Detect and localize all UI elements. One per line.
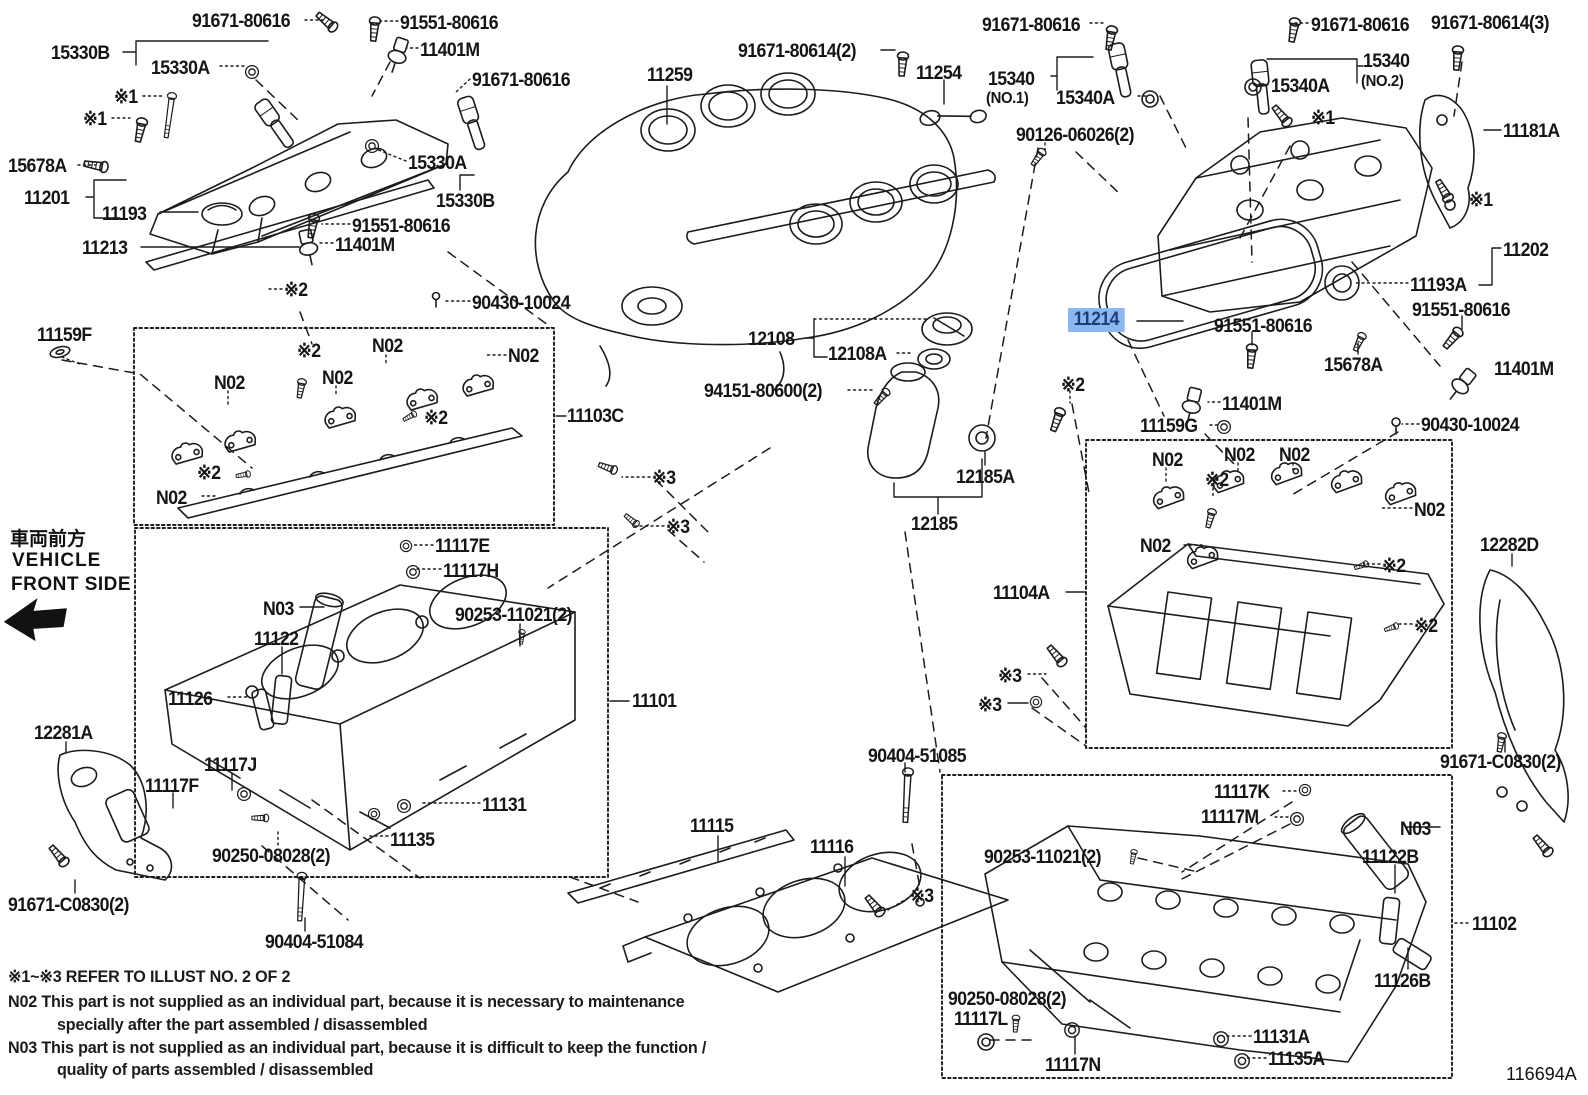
part-label-11181A[interactable]: 11181A <box>1503 122 1560 141</box>
part-label--NO-1-[interactable]: (NO.1) <box>986 91 1028 107</box>
part-label-N03[interactable]: N03 <box>263 600 294 619</box>
part-label-11117E[interactable]: 11117E <box>435 537 490 556</box>
part-label-15340A[interactable]: 15340A <box>1271 77 1330 96</box>
part-label-91671-80616[interactable]: 91671-80616 <box>982 16 1080 35</box>
part-label-N02[interactable]: N02 <box>1224 446 1255 465</box>
part-label-91671-80614-3-[interactable]: 91671-80614(3) <box>1431 14 1549 33</box>
part-label-90430-10024[interactable]: 90430-10024 <box>1421 416 1519 435</box>
coils-and-sensors <box>49 36 1479 1068</box>
gasket-strip-11115-drawing <box>568 830 794 903</box>
note-ref-illust: ※1~※3 REFER TO ILLUST NO. 2 OF 2 <box>8 967 290 987</box>
part-label-91551-80616[interactable]: 91551-80616 <box>1214 317 1312 336</box>
part-label-11213[interactable]: 11213 <box>82 239 127 258</box>
part-label-94151-80600-2-[interactable]: 94151-80600(2) <box>704 382 822 401</box>
part-label-15330B[interactable]: 15330B <box>51 44 110 63</box>
part-label-12282D[interactable]: 12282D <box>1480 536 1539 555</box>
part-label-N02[interactable]: N02 <box>372 337 403 356</box>
box-11103C <box>134 328 554 525</box>
part-label-11103C[interactable]: 11103C <box>567 407 624 426</box>
grommet-12185A-drawing <box>969 425 995 451</box>
part-label-N02[interactable]: N02 <box>1140 537 1171 556</box>
part-label-90250-08028-2-[interactable]: 90250-08028(2) <box>948 990 1066 1009</box>
leader-lines <box>62 20 1469 1058</box>
part-label--1[interactable]: ※1 <box>1469 191 1493 210</box>
part-label-11135A[interactable]: 11135A <box>1268 1050 1325 1069</box>
fasteners <box>47 10 1555 1032</box>
connector-lines <box>66 41 1512 1054</box>
part-label-N03[interactable]: N03 <box>1400 820 1431 839</box>
box-11102 <box>942 775 1452 1078</box>
seal-11159F-drawing <box>49 345 71 360</box>
part-label-11401M[interactable]: 11401M <box>1494 360 1554 379</box>
part-label--3[interactable]: ※3 <box>652 469 676 488</box>
part-label-90126-06026-2-[interactable]: 90126-06026(2) <box>1016 126 1134 145</box>
part-label-11401M[interactable]: 11401M <box>1222 395 1282 414</box>
part-label-11401M[interactable]: 11401M <box>335 236 395 255</box>
part-label-90430-10024[interactable]: 90430-10024 <box>472 294 570 313</box>
part-label-11202[interactable]: 11202 <box>1503 241 1548 260</box>
box-11104A <box>1086 440 1452 748</box>
front-direction-arrow <box>3 596 68 643</box>
part-label-11122B[interactable]: 11122B <box>1362 848 1419 867</box>
part-label-90250-08028-2-[interactable]: 90250-08028(2) <box>212 847 330 866</box>
part-label-11117J[interactable]: 11117J <box>204 756 257 775</box>
parts-diagram-page: 91671-8061691551-8061615330B15330A11401M… <box>0 0 1588 1095</box>
part-label-11117M[interactable]: 11117M <box>1201 808 1259 827</box>
front-side-label-en2: FRONT SIDE <box>11 574 131 596</box>
part-label-15678A[interactable]: 15678A <box>1324 356 1383 375</box>
part-label--2[interactable]: ※2 <box>297 342 321 361</box>
part-label-15330A[interactable]: 15330A <box>151 59 210 78</box>
note-n03-line2: quality of parts assembled / disassemble… <box>57 1060 373 1080</box>
part-label-91671-80614-2-[interactable]: 91671-80614(2) <box>738 42 856 61</box>
part-label-11214[interactable]: 11214 <box>1068 308 1125 332</box>
part-label--2[interactable]: ※2 <box>1414 617 1438 636</box>
part-label-N02[interactable]: N02 <box>508 347 539 366</box>
part-label-N02[interactable]: N02 <box>156 489 187 508</box>
bracket-12282D-drawing <box>1480 570 1568 822</box>
part-label-90253-11021-2-[interactable]: 90253-11021(2) <box>455 606 572 625</box>
part-label--2[interactable]: ※2 <box>1382 557 1406 576</box>
part-label-15340[interactable]: 15340 <box>1363 52 1409 71</box>
part-label--1[interactable]: ※1 <box>1311 109 1335 128</box>
part-label-12185A[interactable]: 12185A <box>956 468 1015 487</box>
part-label-91671-C0830-2-[interactable]: 91671-C0830(2) <box>8 896 129 915</box>
part-label-12281A[interactable]: 12281A <box>34 724 93 743</box>
part-label-11117H[interactable]: 11117H <box>443 562 499 581</box>
part-label-N02[interactable]: N02 <box>214 374 245 393</box>
part-label-15330B[interactable]: 15330B <box>436 192 495 211</box>
part-label--1[interactable]: ※1 <box>83 110 107 129</box>
camshaft-housing-11104A-drawing <box>1108 458 1444 726</box>
part-label-12108[interactable]: 12108 <box>748 330 794 349</box>
part-label-N02[interactable]: N02 <box>1414 501 1445 520</box>
part-label-91551-80616[interactable]: 91551-80616 <box>400 14 498 33</box>
part-label-11159G[interactable]: 11159G <box>1140 417 1198 436</box>
part-label-91671-C0830-2-[interactable]: 91671-C0830(2) <box>1440 753 1561 772</box>
note-n03-line1: N03 This part is not supplied as an indi… <box>8 1038 706 1058</box>
part-label--2[interactable]: ※2 <box>197 464 221 483</box>
part-label-11101[interactable]: 11101 <box>632 692 676 711</box>
part-label--3[interactable]: ※3 <box>998 667 1022 686</box>
part-label-11117L[interactable]: 11117L <box>954 1010 1008 1029</box>
part-label-11259[interactable]: 11259 <box>647 66 692 85</box>
exploded-view-line-art <box>0 0 1588 1095</box>
front-side-label-en1: VEHICLE <box>12 550 101 572</box>
part-label--1[interactable]: ※1 <box>114 88 138 107</box>
part-label-15340A[interactable]: 15340A <box>1056 89 1115 108</box>
part-label-15340[interactable]: 15340 <box>988 70 1034 89</box>
part-label-11126B[interactable]: 11126B <box>1374 972 1431 991</box>
part-label-15678A[interactable]: 15678A <box>8 157 67 176</box>
part-label-91671-80616[interactable]: 91671-80616 <box>472 71 570 90</box>
bracket-12281A-drawing <box>58 750 171 880</box>
part-label-11104A[interactable]: 11104A <box>993 584 1050 603</box>
part-label-12185[interactable]: 12185 <box>911 515 957 534</box>
part-label--2[interactable]: ※2 <box>284 281 308 300</box>
part-label-11254[interactable]: 11254 <box>916 64 961 83</box>
seal-11193A-drawing <box>1325 266 1359 300</box>
note-n02-line2: specially after the part assembled / dis… <box>57 1015 427 1035</box>
part-label-91551-80616[interactable]: 91551-80616 <box>1412 301 1510 320</box>
part-label-11102[interactable]: 11102 <box>1472 915 1516 934</box>
part-label-11117F[interactable]: 11117F <box>145 777 199 796</box>
part-label-90404-51085[interactable]: 90404-51085 <box>868 747 966 766</box>
part-label-11201[interactable]: 11201 <box>24 189 69 208</box>
part-label-91551-80616[interactable]: 91551-80616 <box>352 217 450 236</box>
part-label-90253-11021-2-[interactable]: 90253-11021(2) <box>984 848 1101 867</box>
part-label-11131A[interactable]: 11131A <box>1253 1028 1310 1047</box>
part-label-11115[interactable]: 11115 <box>690 817 733 836</box>
group-boxes <box>134 328 1452 1078</box>
part-label-15330A[interactable]: 15330A <box>408 154 467 173</box>
part-label-11135[interactable]: 11135 <box>390 831 434 850</box>
part-label-11401M[interactable]: 11401M <box>420 41 480 60</box>
part-label-91671-80616[interactable]: 91671-80616 <box>192 12 290 31</box>
part-label-N02[interactable]: N02 <box>1152 451 1183 470</box>
part-label--3[interactable]: ※3 <box>666 518 690 537</box>
part-label-N02[interactable]: N02 <box>322 369 353 388</box>
part-label--2[interactable]: ※2 <box>1205 471 1229 490</box>
part-label--NO-2-[interactable]: (NO.2) <box>1361 74 1403 90</box>
diagram-number: 116694A <box>1506 1064 1577 1085</box>
part-label--2[interactable]: ※2 <box>424 409 448 428</box>
part-label-11117K[interactable]: 11117K <box>1214 783 1270 802</box>
part-label-11117N[interactable]: 11117N <box>1045 1056 1101 1075</box>
part-label-12108A[interactable]: 12108A <box>828 345 887 364</box>
toyota-logo <box>622 287 682 325</box>
part-label--3[interactable]: ※3 <box>978 696 1002 715</box>
part-label-11131[interactable]: 11131 <box>482 796 526 815</box>
part-label-91671-80616[interactable]: 91671-80616 <box>1311 16 1409 35</box>
part-label-11193A[interactable]: 11193A <box>1410 276 1467 295</box>
front-side-label-jp: 車両前方 <box>10 524 86 551</box>
part-label-11126[interactable]: 11126 <box>168 690 212 709</box>
part-label-11159F[interactable]: 11159F <box>37 326 92 345</box>
head-gasket-11116-drawing <box>623 842 1008 992</box>
part-label-90404-51084[interactable]: 90404-51084 <box>265 933 363 952</box>
part-label--2[interactable]: ※2 <box>1061 376 1085 395</box>
part-label--3[interactable]: ※3 <box>910 887 934 906</box>
part-label-11193[interactable]: 11193 <box>102 205 146 224</box>
part-label-11116[interactable]: 11116 <box>810 838 853 857</box>
part-label-11122[interactable]: 11122 <box>254 630 298 649</box>
note-n02-line1: N02 This part is not supplied as an indi… <box>8 992 684 1012</box>
part-label-N02[interactable]: N02 <box>1279 446 1310 465</box>
